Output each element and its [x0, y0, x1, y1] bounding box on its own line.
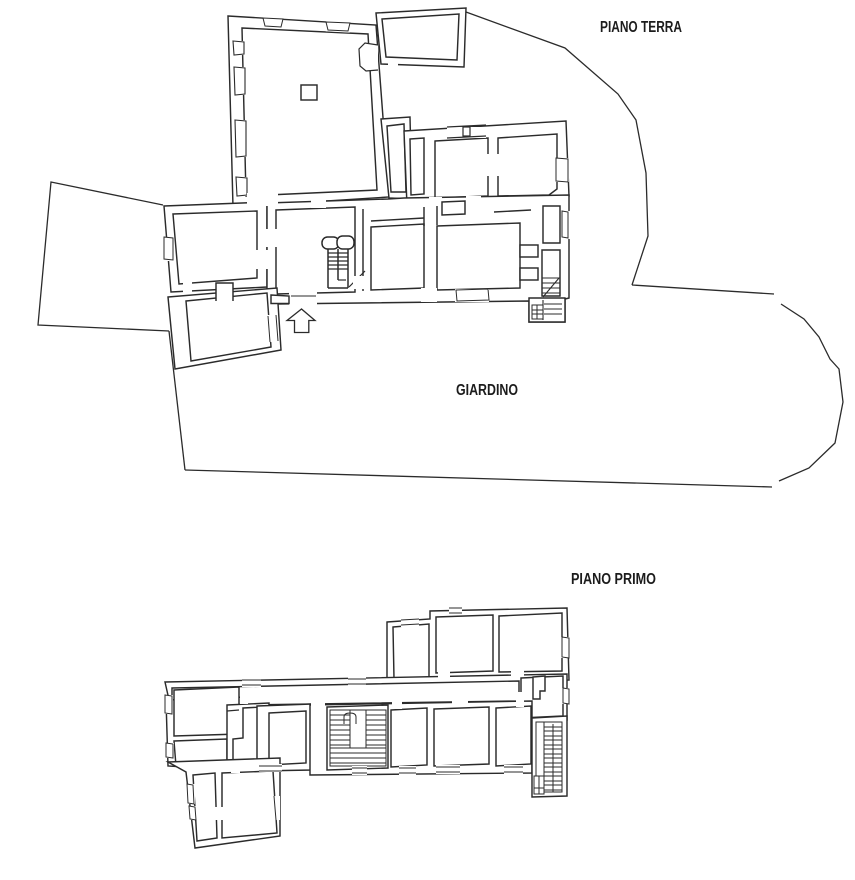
- svg-text:GIARDINO: GIARDINO: [456, 382, 518, 399]
- svg-text:PIANO PRIMO: PIANO PRIMO: [571, 571, 656, 588]
- svg-text:PIANO TERRA: PIANO TERRA: [600, 19, 682, 36]
